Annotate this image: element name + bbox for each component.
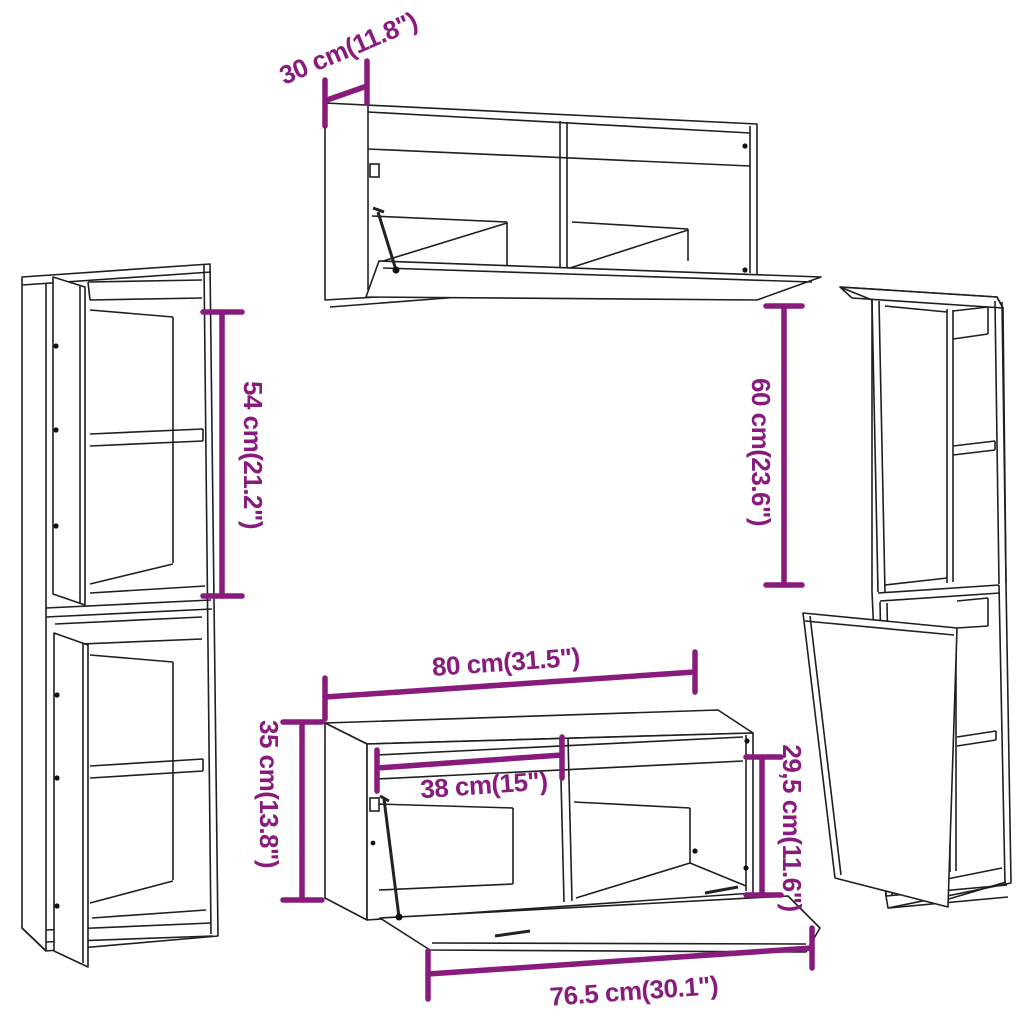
left-tall-cabinet	[22, 264, 218, 967]
hinge	[54, 775, 59, 780]
diagram-canvas: 30 cm(11.8") 54 cm(21.2") 35 cm(13.8") 6…	[0, 0, 1024, 1024]
dimension-label: 60 cm(23.6")	[746, 378, 776, 526]
screw-hole	[742, 267, 747, 272]
door-catch	[370, 164, 379, 177]
hinge	[53, 523, 58, 528]
open-door	[803, 613, 957, 907]
hinge	[53, 427, 58, 432]
dimension-right-unit-height: 60 cm(23.6")	[746, 306, 802, 585]
dimension-label: 76.5 cm(30.1")	[549, 970, 719, 1012]
top-wall-cabinet	[325, 103, 821, 307]
hinge	[54, 903, 59, 908]
dimension-label: 80 cm(31.5")	[431, 642, 581, 682]
dimension-diagram: 30 cm(11.8") 54 cm(21.2") 35 cm(13.8") 6…	[0, 0, 1024, 1024]
screw-hole	[692, 848, 697, 853]
right-tall-cabinet	[803, 287, 1011, 908]
hinge	[54, 692, 59, 697]
screw-hole	[743, 865, 748, 870]
screw-hole	[742, 143, 747, 148]
dimension-label: 35 cm(13.8")	[254, 720, 284, 868]
door-catch	[370, 798, 379, 811]
dimension-bench-height: 35 cm(13.8")	[254, 720, 322, 900]
tv-bench	[325, 710, 820, 952]
dimension-label: 54 cm(21.2")	[238, 381, 268, 529]
dimension-flap-door-height: 29,5 cm(11.6")	[746, 744, 807, 911]
screw-hole	[744, 738, 749, 743]
dimension-label: 29,5 cm(11.6")	[777, 744, 807, 911]
dimension-bench-width: 80 cm(31.5")	[325, 642, 695, 719]
dimension-label: 30 cm(11.8")	[275, 6, 422, 91]
hinge	[53, 343, 58, 348]
